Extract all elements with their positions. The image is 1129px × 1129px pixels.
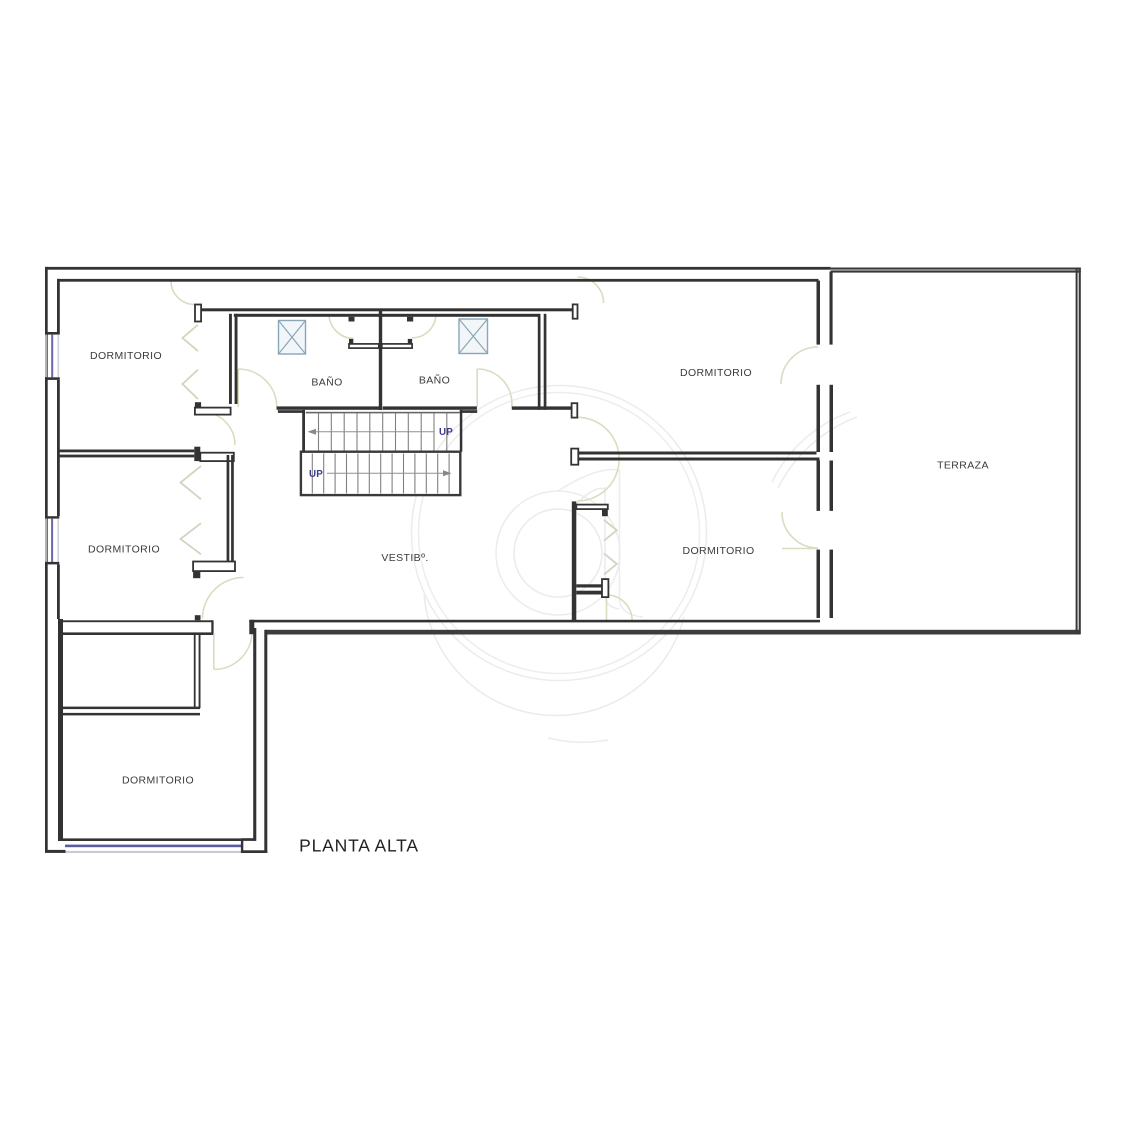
svg-text:BAÑO: BAÑO (419, 373, 450, 386)
svg-text:UP: UP (309, 469, 323, 480)
svg-text:DORMITORIO: DORMITORIO (122, 774, 194, 786)
svg-text:PLANTA ALTA: PLANTA ALTA (299, 836, 419, 856)
svg-text:BAÑO: BAÑO (311, 375, 342, 388)
svg-text:DORMITORIO: DORMITORIO (682, 545, 754, 557)
svg-text:TERRAZA: TERRAZA (937, 459, 989, 471)
svg-text:DORMITORIO: DORMITORIO (90, 350, 162, 362)
svg-text:UP: UP (439, 427, 453, 438)
svg-text:DORMITORIO: DORMITORIO (680, 367, 752, 379)
svg-text:DORMITORIO: DORMITORIO (88, 543, 160, 555)
svg-text:VESTIBº.: VESTIBº. (381, 552, 428, 564)
